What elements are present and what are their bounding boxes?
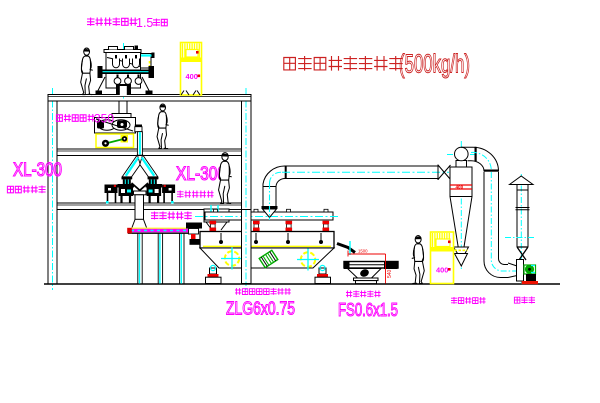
svg-text:1500: 1500	[358, 249, 368, 254]
svg-text:350: 350	[94, 112, 114, 126]
svg-text:FS0.6x1.5: FS0.6x1.5	[338, 300, 398, 320]
svg-text:XL-300: XL-300	[176, 164, 226, 185]
svg-text:400: 400	[436, 266, 448, 275]
svg-text:400: 400	[456, 185, 464, 190]
svg-text:ZLG6x0.75: ZLG6x0.75	[226, 299, 295, 319]
svg-text:540: 540	[387, 269, 393, 278]
svg-text:1.5: 1.5	[136, 16, 153, 30]
svg-text:(500kg/h): (500kg/h)	[399, 49, 470, 79]
svg-text:XL-300: XL-300	[13, 160, 62, 181]
svg-text:400: 400	[186, 72, 198, 81]
